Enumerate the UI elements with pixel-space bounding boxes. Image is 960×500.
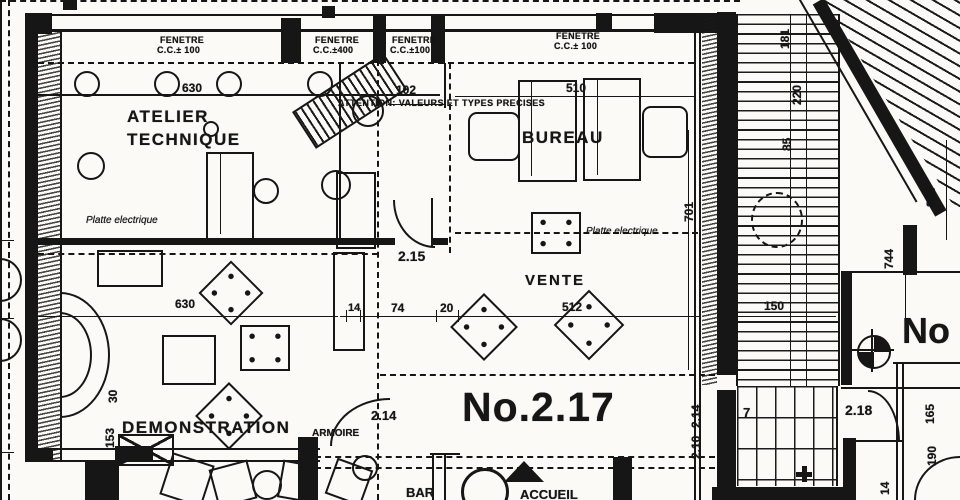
dim-701: 701 bbox=[683, 202, 695, 222]
window-sill-value: C.C.± 100 bbox=[554, 42, 597, 51]
demo-dashed-line bbox=[38, 253, 378, 255]
tick bbox=[436, 310, 437, 322]
tick bbox=[346, 310, 347, 322]
dim-153: 153 bbox=[104, 428, 116, 448]
vente-dashed-boundary bbox=[380, 374, 715, 376]
dim-line-800 bbox=[946, 140, 947, 240]
window-label: FENETRE bbox=[160, 36, 204, 45]
room-label-vente: VENTE bbox=[525, 273, 585, 288]
wall-pier bbox=[281, 18, 301, 63]
survey-point-tick bbox=[871, 329, 873, 372]
window-label: FENETRE bbox=[315, 36, 359, 45]
cross-marker-icon bbox=[802, 466, 807, 482]
tilted-table bbox=[209, 460, 258, 500]
window-sill-value: C.C.±400 bbox=[313, 46, 353, 55]
dim-181: 181 bbox=[779, 29, 791, 49]
workbench bbox=[206, 152, 254, 240]
tick bbox=[2, 452, 14, 453]
survey-point-icon bbox=[857, 335, 891, 369]
dim-line-vente bbox=[340, 316, 700, 317]
dim-74: 74 bbox=[391, 302, 404, 314]
platte-electrique-note: Platte electrique bbox=[586, 227, 658, 237]
right-partition bbox=[902, 362, 904, 500]
dim-14: 14 bbox=[348, 303, 360, 314]
right-black-wall bbox=[841, 272, 852, 385]
stool-icon bbox=[154, 71, 180, 97]
display-table bbox=[240, 325, 290, 371]
entrance-arrow-icon bbox=[504, 461, 544, 482]
platte-electrique-note: Platte electrique bbox=[86, 216, 158, 226]
dim-800: 800 bbox=[925, 187, 937, 207]
dim-510: 510 bbox=[566, 82, 586, 94]
left-wall-texture bbox=[38, 32, 60, 460]
room-label-bureau: BUREAU bbox=[522, 129, 604, 146]
adjacent-unit-label: No bbox=[902, 313, 950, 349]
wall-texture bbox=[702, 15, 717, 385]
floor-plan-scan: FENETRE C.C.± 100 FENETRE C.C.±400 FENET… bbox=[0, 0, 960, 500]
dim-line-701 bbox=[688, 130, 689, 370]
dim-line-demo bbox=[38, 316, 338, 317]
dimension-line-left bbox=[8, 0, 10, 500]
dim-190: 190 bbox=[926, 446, 938, 466]
stool-icon bbox=[74, 71, 100, 97]
bottom-wall-black bbox=[712, 487, 852, 500]
dim-30: 30 bbox=[107, 390, 119, 403]
attention-note: ATTENTION: VALEURS ET TYPES PRECISES bbox=[338, 99, 545, 108]
scan-mark bbox=[63, 0, 77, 10]
left-door-swing-icon bbox=[0, 258, 22, 302]
bottom-dashed-boundary bbox=[315, 456, 715, 458]
wall-pier bbox=[25, 448, 53, 462]
display-table-diamond bbox=[450, 293, 518, 361]
window-label: FENETRE bbox=[392, 36, 436, 45]
dim-165: 165 bbox=[924, 404, 936, 424]
equipment-xbox bbox=[118, 434, 174, 466]
dim-630-atelier: 630 bbox=[182, 82, 202, 94]
display-table bbox=[162, 335, 216, 385]
right-room-wall bbox=[841, 387, 960, 389]
counter-line bbox=[430, 453, 460, 455]
room-label-technique: TECHNIQUE bbox=[127, 131, 241, 148]
tick bbox=[2, 240, 14, 241]
chair-icon bbox=[77, 152, 105, 180]
chair-icon bbox=[253, 178, 279, 204]
tilted-crate bbox=[277, 460, 313, 500]
fixture-block bbox=[85, 462, 119, 500]
dim-512: 512 bbox=[562, 301, 582, 313]
stair-rail-line bbox=[806, 14, 807, 386]
window-label: FENETRE bbox=[556, 32, 600, 41]
office-chair bbox=[468, 112, 520, 161]
dim-14-corner: 14 bbox=[879, 482, 891, 495]
stair-door-jamb bbox=[717, 390, 736, 392]
target-symbol-icon bbox=[203, 121, 219, 137]
axis-line-top bbox=[0, 0, 740, 2]
right-room-wall bbox=[841, 271, 960, 273]
window-sill-value: C.C.± 100 bbox=[157, 46, 200, 55]
display-table-diamond bbox=[195, 382, 263, 450]
dim-2-10-stair: 2.10 bbox=[690, 436, 702, 459]
side-desk bbox=[336, 172, 376, 249]
dim-102: 102 bbox=[396, 84, 416, 96]
room-label-bar: BAR bbox=[406, 486, 434, 499]
stair-dashed-circle bbox=[751, 192, 803, 248]
stool-icon bbox=[216, 71, 242, 97]
interior-wall-stub bbox=[433, 238, 448, 245]
room-label-accueil: ACCUEIL bbox=[520, 488, 578, 500]
dim-2-18: 2.18 bbox=[845, 403, 872, 417]
dim-220: 220 bbox=[791, 85, 803, 105]
scan-edge-left bbox=[0, 0, 2, 500]
tick bbox=[695, 310, 696, 322]
landing-tile-grid bbox=[737, 386, 838, 486]
table-square bbox=[531, 212, 581, 254]
tick bbox=[458, 310, 459, 322]
stair-number-label: 7 bbox=[743, 406, 750, 419]
door-leaf bbox=[431, 198, 433, 246]
wall-pier bbox=[613, 457, 632, 500]
unit-number-label: No.2.17 bbox=[462, 387, 615, 428]
door-swing-atelier bbox=[393, 200, 435, 248]
wall-pier bbox=[596, 13, 612, 32]
window-sill-value: C.C.±100 bbox=[390, 46, 430, 55]
dim-744: 744 bbox=[883, 249, 895, 269]
cabinet bbox=[97, 250, 163, 287]
counter-line bbox=[444, 455, 446, 500]
dim-2-14-door: 2.14 bbox=[371, 409, 396, 422]
wall-pier bbox=[322, 6, 335, 18]
column-circle bbox=[461, 468, 509, 500]
room-label-demonstration: DEMONSTRATION bbox=[122, 419, 290, 436]
stair-wall-black-upper bbox=[717, 12, 736, 373]
armoire-label: ARMOIRE bbox=[312, 429, 359, 439]
right-black-wall bbox=[843, 438, 856, 500]
workbench-line bbox=[220, 154, 221, 234]
left-door-swing-icon bbox=[0, 318, 22, 362]
dim-line-bureau bbox=[455, 96, 695, 97]
dim-20: 20 bbox=[440, 302, 453, 314]
dim-85: 85 bbox=[781, 138, 793, 151]
dim-2-15: 2.15 bbox=[398, 249, 425, 263]
stair-door-jamb bbox=[717, 373, 736, 375]
bureau-dashed-boundary bbox=[449, 63, 451, 253]
dim-line-150 bbox=[736, 316, 836, 317]
stair-wall-black-lower bbox=[717, 392, 736, 500]
office-chair bbox=[642, 106, 688, 158]
stool-icon bbox=[352, 455, 378, 481]
dim-2-14-stair: 2.14 bbox=[690, 405, 702, 428]
dim-150: 150 bbox=[764, 300, 784, 312]
dim-630-demo: 630 bbox=[175, 298, 195, 310]
room-label-atelier: ATELIER bbox=[127, 108, 209, 125]
